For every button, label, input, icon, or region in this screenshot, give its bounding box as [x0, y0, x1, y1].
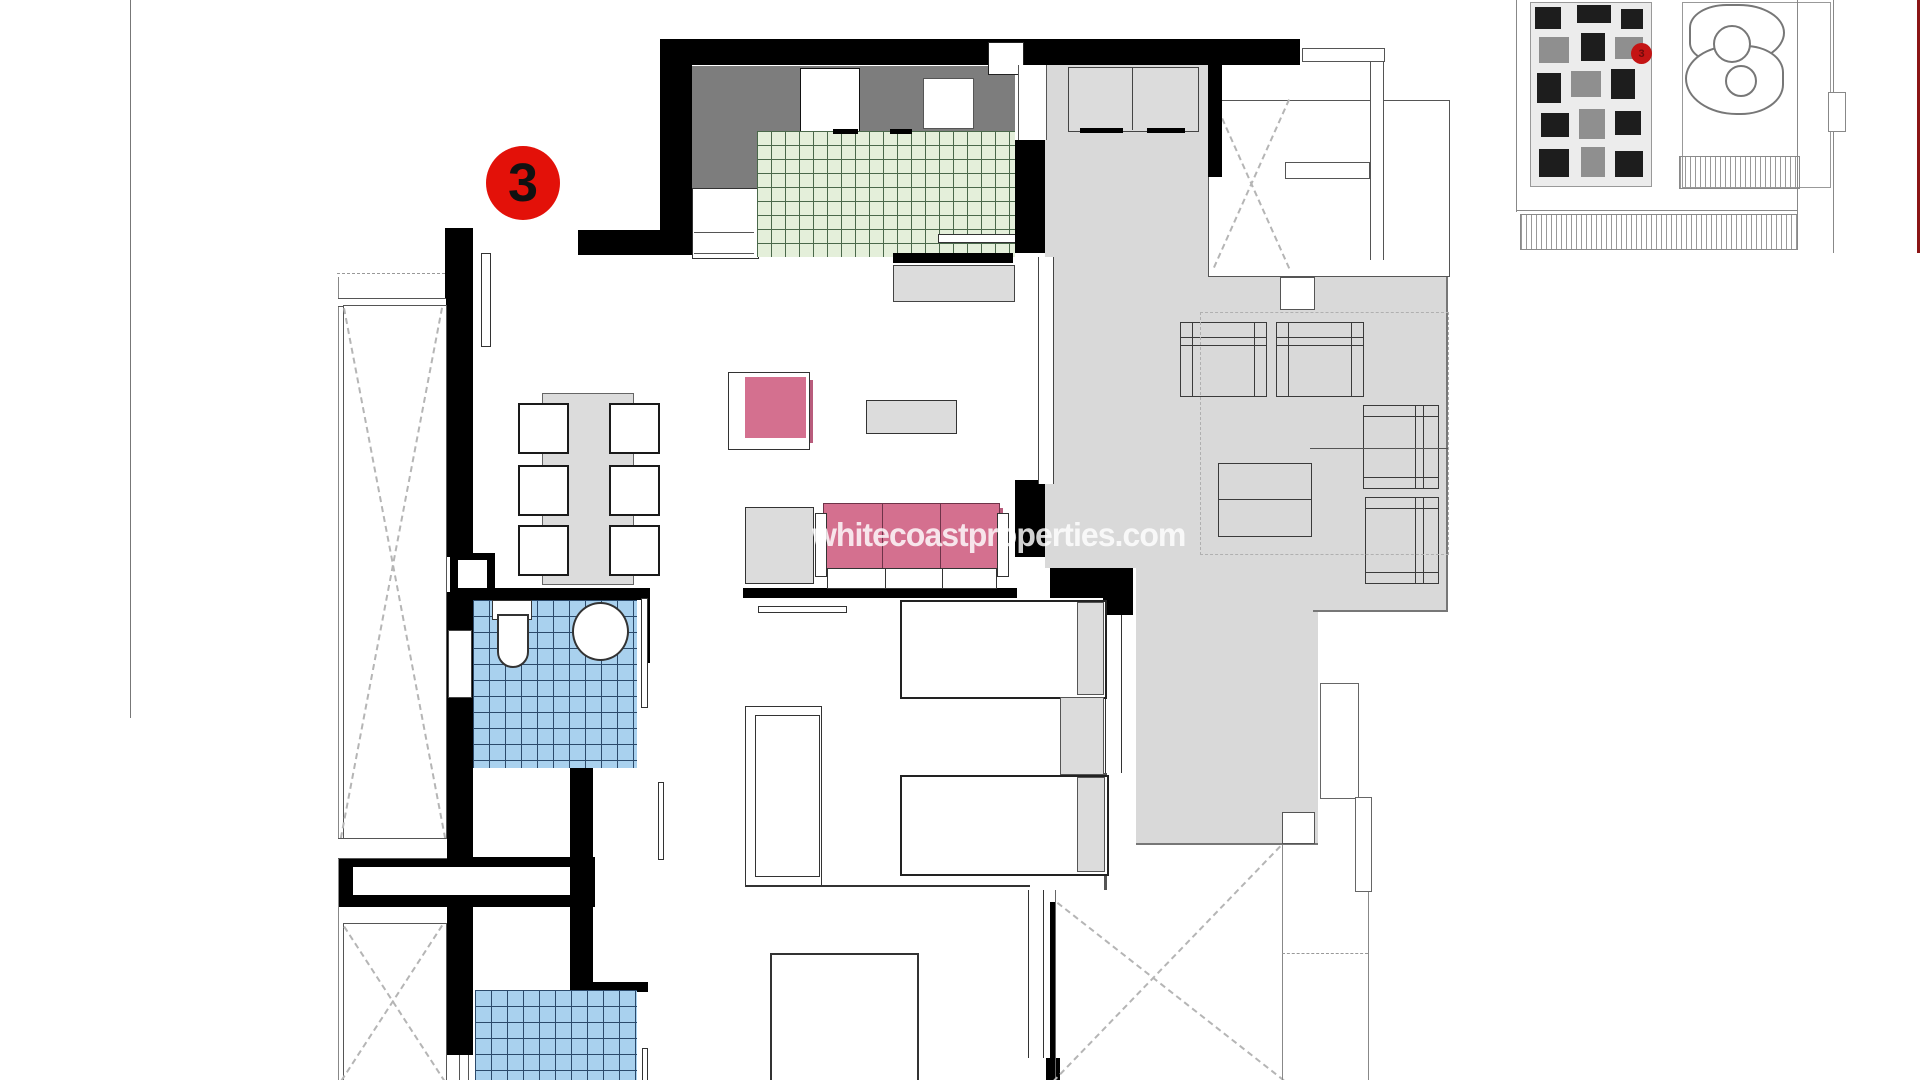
- terrace-opening: [1280, 277, 1315, 310]
- unit-number: 3: [508, 152, 538, 214]
- wall-kitchen-east: [1015, 140, 1045, 253]
- counter-shadow: [890, 129, 912, 134]
- outdoor-sofa-shadow: [1147, 128, 1185, 133]
- wall-north: [660, 39, 1300, 65]
- sofa-front: [827, 568, 997, 589]
- site-boundary: [1516, 210, 1798, 211]
- bath2-door-leaf: [642, 1048, 648, 1080]
- bed-pillow: [1077, 602, 1104, 695]
- threshold: [758, 606, 847, 613]
- dining-chair: [518, 465, 569, 516]
- railing: [1285, 162, 1370, 179]
- watermark: whitecoastproperties.com: [812, 516, 1103, 554]
- strip-dashed-top: [337, 273, 445, 274]
- strip-gap: [338, 838, 447, 859]
- terrace-post-line: [1055, 890, 1056, 1080]
- dining-chair: [609, 525, 660, 576]
- doorway-threshold: [459, 1055, 469, 1080]
- site-boundary: [1516, 0, 1517, 212]
- living-window: [1038, 257, 1054, 484]
- floor-plan-canvas: whitecoastproperties.com 3: [0, 0, 1920, 1080]
- outdoor-sofa-shadow: [1080, 128, 1123, 133]
- wall-entry: [578, 230, 692, 255]
- terrace-line: [1282, 845, 1283, 1080]
- wall-west: [445, 228, 473, 557]
- wall-terrace: [1208, 65, 1222, 177]
- wardrobe-inner: [755, 715, 820, 877]
- wall-bedroom-corner: [1103, 588, 1133, 615]
- pergola-dashed-outline: [1200, 312, 1449, 555]
- site-building: [1530, 2, 1652, 187]
- kitchen-counter: [692, 131, 757, 188]
- armchair-seat: [745, 377, 806, 438]
- void-cross-line: [1057, 902, 1285, 1080]
- site-unit-number: 3: [1638, 48, 1644, 60]
- terrace-dashed-line: [1282, 953, 1368, 954]
- kitchen-doorway: [694, 232, 754, 254]
- site-step: [1828, 92, 1846, 132]
- unit-number-badge: 3: [486, 146, 560, 220]
- terrace-edge: [1313, 610, 1448, 612]
- dining-chair: [518, 403, 569, 454]
- bath1-door-leaf: [641, 598, 648, 708]
- wall-kitchen-south: [893, 253, 1013, 263]
- bathroom-floor-tiles: [475, 990, 637, 1080]
- stair-outline: [1320, 683, 1359, 799]
- entry-door-leaf: [481, 253, 491, 347]
- bed: [900, 600, 1107, 699]
- counter-shadow: [833, 129, 858, 134]
- wall-west-bottom: [447, 907, 473, 1055]
- boundary-line-left: [130, 0, 131, 718]
- washbasin: [572, 602, 629, 661]
- railing: [1302, 48, 1385, 62]
- coffee-table: [866, 400, 957, 434]
- toilet-bowl: [497, 614, 529, 668]
- wall-kitchen-west: [660, 39, 692, 252]
- site-boundary: [1797, 0, 1798, 250]
- site-garden: [1682, 2, 1831, 188]
- terrace-floor: [1136, 568, 1318, 845]
- dining-chair: [518, 525, 569, 576]
- bedroom-window: [1105, 615, 1122, 773]
- side-table: [745, 507, 814, 584]
- strip-outer-line: [338, 277, 339, 1080]
- bedroom-south-line: [745, 885, 1030, 887]
- wall-living-south: [743, 588, 1017, 598]
- sideboard: [893, 265, 1015, 302]
- bedroom-door-leaf: [658, 782, 664, 860]
- site-hatch-strip: [1520, 214, 1798, 250]
- outdoor-sofa-seam: [1132, 67, 1133, 130]
- terrace-door: [1018, 65, 1047, 140]
- wall-window: [448, 630, 472, 698]
- kitchen-shelf: [938, 234, 1017, 243]
- wall-band-slot: [353, 867, 572, 895]
- doorpost-core: [458, 560, 487, 588]
- dining-chair: [609, 465, 660, 516]
- wall-bath1-north: [473, 588, 645, 600]
- site-unit-marker: 3: [1631, 43, 1652, 64]
- railing: [1370, 62, 1384, 260]
- open-terrace: [1208, 100, 1450, 277]
- wall-dressing-east: [570, 768, 593, 982]
- kitchen-appliance: [800, 68, 860, 132]
- outdoor-sofa: [1068, 67, 1199, 132]
- bed-pillow: [1077, 777, 1105, 872]
- terrace-floor: [1045, 65, 1208, 568]
- bedroom3-window: [1028, 890, 1044, 1058]
- dining-chair: [609, 403, 660, 454]
- nightstand: [1060, 697, 1104, 775]
- bed: [770, 953, 919, 1080]
- terrace-pillar: [1282, 812, 1315, 844]
- site-plan: [1513, 0, 1920, 256]
- void-cross-line: [1052, 846, 1281, 1080]
- kitchen-sink: [923, 78, 974, 129]
- stair-outline: [1355, 797, 1372, 892]
